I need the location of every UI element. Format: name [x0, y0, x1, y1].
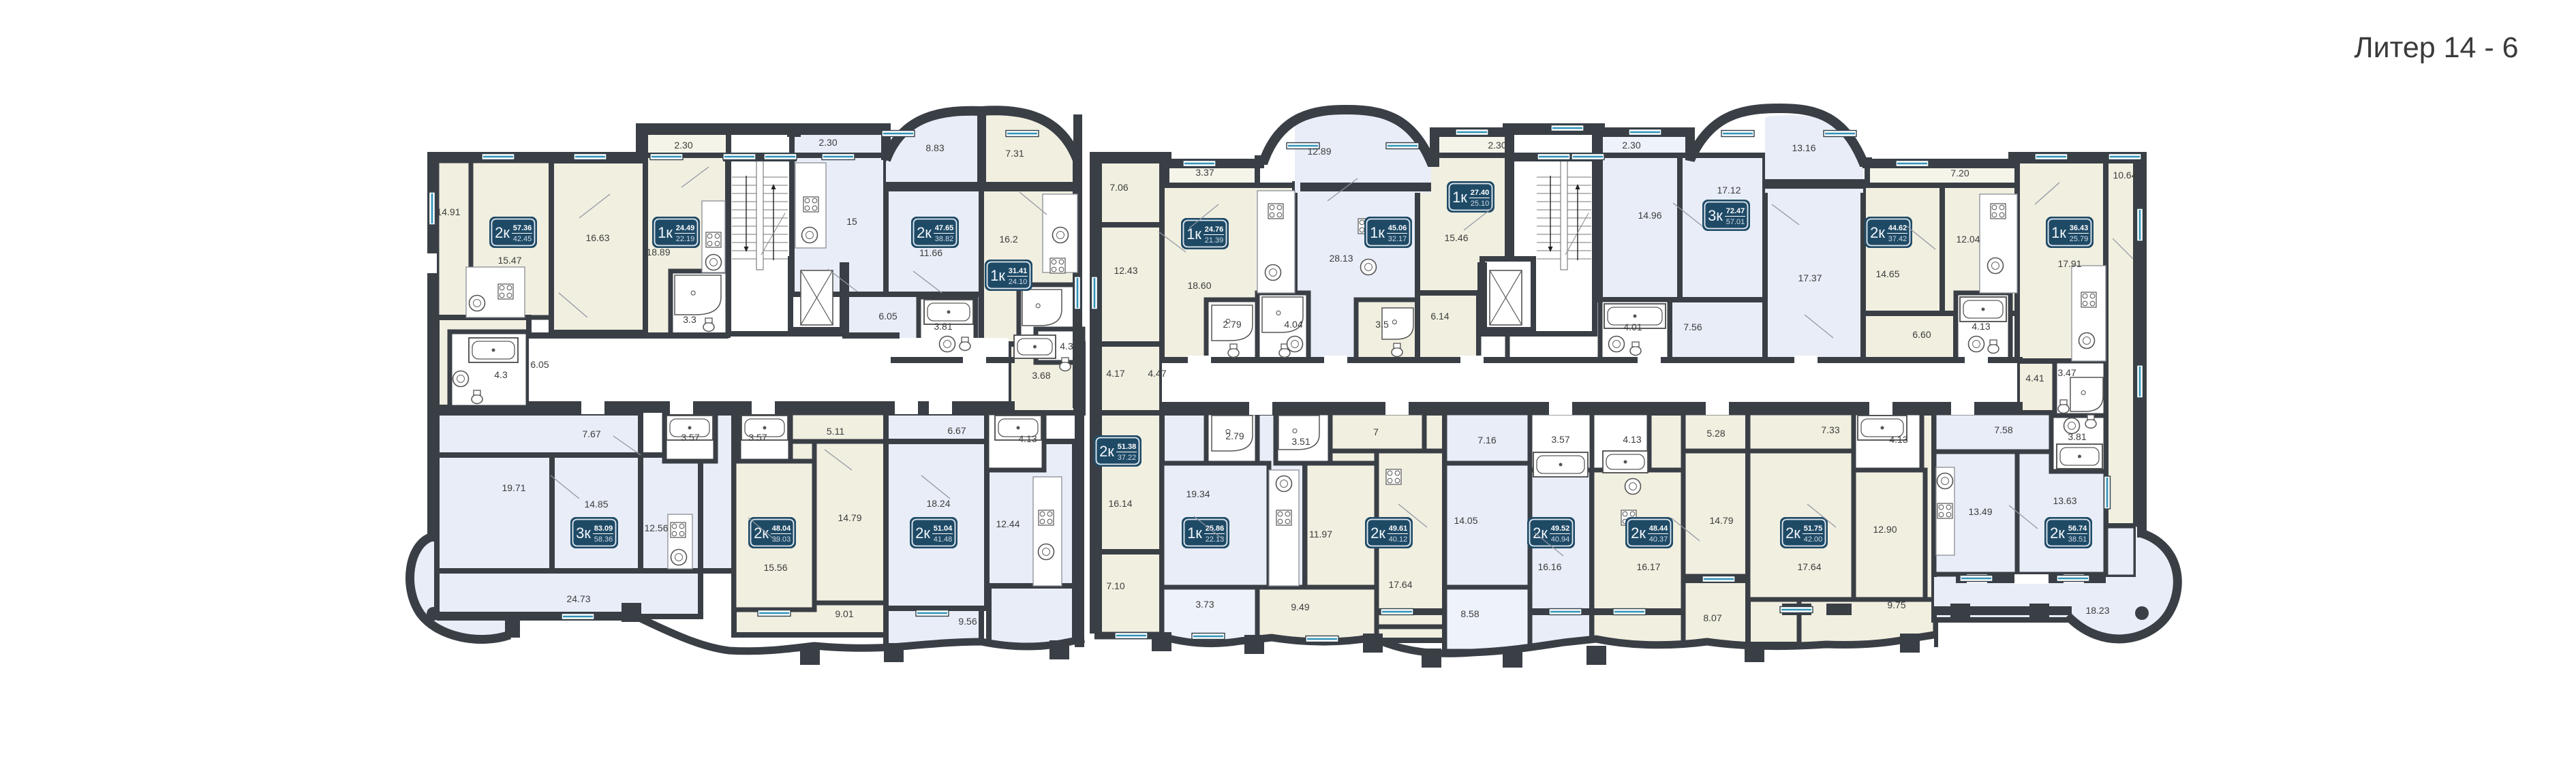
svg-text:24.49: 24.49 — [676, 224, 695, 232]
svg-text:4.3: 4.3 — [494, 369, 508, 380]
svg-text:Литер 14 - 6: Литер 14 - 6 — [2354, 31, 2518, 64]
svg-text:2к: 2к — [1099, 443, 1114, 460]
svg-text:8.83: 8.83 — [925, 142, 944, 153]
svg-text:9.75: 9.75 — [1887, 599, 1905, 610]
svg-text:14.65: 14.65 — [1875, 268, 1899, 279]
svg-text:37.22: 37.22 — [1118, 454, 1137, 462]
svg-text:51.04: 51.04 — [934, 525, 953, 533]
svg-text:1к: 1к — [990, 267, 1005, 284]
svg-text:40.12: 40.12 — [1389, 535, 1408, 544]
svg-text:12.43: 12.43 — [1114, 265, 1137, 276]
svg-text:36.43: 36.43 — [2070, 224, 2089, 232]
svg-text:14.85: 14.85 — [584, 499, 608, 510]
svg-text:14.96: 14.96 — [1638, 210, 1661, 221]
svg-text:22.19: 22.19 — [676, 235, 695, 243]
svg-text:9.56: 9.56 — [958, 616, 977, 627]
svg-text:16.17: 16.17 — [1636, 561, 1660, 572]
svg-text:12.89: 12.89 — [1307, 146, 1331, 157]
svg-text:72.47: 72.47 — [1726, 207, 1745, 215]
svg-text:4.13: 4.13 — [1018, 433, 1037, 444]
svg-text:14.91: 14.91 — [436, 206, 460, 217]
svg-text:2.30: 2.30 — [818, 137, 837, 148]
svg-text:16.16: 16.16 — [1537, 561, 1561, 572]
svg-text:12.56: 12.56 — [644, 522, 668, 533]
svg-text:28.13: 28.13 — [1329, 253, 1353, 264]
svg-text:17.91: 17.91 — [2057, 258, 2081, 269]
svg-text:6.14: 6.14 — [1430, 311, 1449, 322]
svg-text:40.37: 40.37 — [1649, 535, 1668, 544]
svg-text:4.47: 4.47 — [1148, 368, 1166, 379]
svg-text:17.37: 17.37 — [1798, 272, 1822, 283]
svg-text:24.10: 24.10 — [1009, 278, 1028, 286]
svg-text:2к: 2к — [1785, 525, 1800, 542]
svg-text:7.67: 7.67 — [582, 428, 600, 439]
svg-text:3.3: 3.3 — [683, 314, 696, 325]
svg-text:16.14: 16.14 — [1108, 498, 1132, 509]
svg-text:25.10: 25.10 — [1471, 200, 1490, 208]
svg-text:13.49: 13.49 — [1968, 506, 1992, 517]
svg-text:38.82: 38.82 — [935, 235, 954, 243]
svg-text:7.33: 7.33 — [1821, 424, 1839, 435]
svg-text:2.79: 2.79 — [1223, 319, 1241, 330]
svg-text:16.63: 16.63 — [585, 232, 609, 243]
svg-text:1к: 1к — [1186, 225, 1201, 243]
svg-text:31.41: 31.41 — [1009, 267, 1028, 275]
svg-text:7.31: 7.31 — [1005, 148, 1024, 159]
svg-text:9.49: 9.49 — [1291, 602, 1309, 612]
svg-text:18.23: 18.23 — [2085, 605, 2109, 616]
svg-text:3.73: 3.73 — [1195, 599, 1214, 610]
svg-text:15: 15 — [846, 216, 857, 227]
svg-text:2к: 2к — [915, 525, 930, 542]
svg-text:15.46: 15.46 — [1444, 232, 1468, 243]
svg-text:42.45: 42.45 — [513, 235, 532, 243]
svg-text:11.66: 11.66 — [919, 247, 942, 258]
svg-text:83.09: 83.09 — [594, 525, 613, 533]
svg-text:2к: 2к — [1370, 525, 1385, 542]
svg-text:1к: 1к — [2051, 224, 2066, 241]
svg-text:4.01: 4.01 — [1623, 322, 1642, 332]
svg-text:24.76: 24.76 — [1205, 225, 1224, 234]
svg-text:16.2: 16.2 — [999, 234, 1017, 245]
svg-text:19.71: 19.71 — [502, 482, 525, 493]
svg-text:4.17: 4.17 — [1106, 368, 1124, 379]
svg-text:4.13: 4.13 — [1623, 434, 1641, 445]
svg-text:8.58: 8.58 — [1460, 608, 1479, 619]
svg-text:5.28: 5.28 — [1706, 428, 1725, 439]
svg-text:3.57: 3.57 — [748, 432, 767, 443]
svg-text:6.05: 6.05 — [878, 311, 897, 322]
svg-text:2.79: 2.79 — [1225, 431, 1244, 441]
svg-text:2к: 2к — [495, 224, 510, 241]
svg-text:3.51: 3.51 — [1291, 436, 1310, 447]
svg-text:51.38: 51.38 — [1118, 443, 1137, 451]
svg-text:25.79: 25.79 — [2070, 235, 2089, 243]
svg-text:57.36: 57.36 — [513, 224, 532, 232]
svg-text:6.60: 6.60 — [1912, 329, 1931, 340]
svg-text:58.36: 58.36 — [594, 535, 613, 544]
svg-text:2.30: 2.30 — [674, 140, 692, 151]
svg-text:45.06: 45.06 — [1388, 224, 1407, 232]
svg-text:3.47: 3.47 — [2057, 367, 2076, 378]
svg-text:13.63: 13.63 — [2053, 495, 2076, 506]
svg-text:40.94: 40.94 — [1551, 535, 1570, 544]
svg-text:7.06: 7.06 — [1109, 182, 1128, 193]
svg-text:18.60: 18.60 — [1187, 280, 1211, 291]
svg-text:14.79: 14.79 — [838, 512, 861, 523]
svg-text:7.20: 7.20 — [1950, 168, 1969, 178]
svg-text:11.97: 11.97 — [1309, 529, 1332, 540]
svg-text:48.04: 48.04 — [772, 525, 791, 533]
svg-text:47.65: 47.65 — [935, 224, 954, 232]
svg-text:19.34: 19.34 — [1186, 488, 1210, 499]
svg-text:14.79: 14.79 — [1709, 515, 1733, 526]
svg-text:7.58: 7.58 — [1994, 424, 2012, 435]
svg-text:2.30: 2.30 — [1622, 140, 1640, 151]
svg-text:3.68: 3.68 — [1032, 370, 1050, 381]
svg-text:3.81: 3.81 — [934, 321, 952, 332]
svg-text:25.86: 25.86 — [1206, 525, 1225, 533]
svg-text:3.57: 3.57 — [1551, 434, 1569, 445]
svg-text:17.64: 17.64 — [1388, 579, 1412, 590]
svg-text:2к: 2к — [2050, 525, 2065, 542]
svg-text:32.17: 32.17 — [1388, 235, 1407, 243]
svg-text:2к: 2к — [917, 224, 932, 241]
svg-text:12.04: 12.04 — [1956, 234, 1980, 245]
svg-text:3.5: 3.5 — [1375, 319, 1389, 330]
svg-text:17.64: 17.64 — [1797, 561, 1821, 572]
svg-text:12.44: 12.44 — [996, 518, 1019, 529]
svg-text:2к: 2к — [1870, 224, 1885, 241]
svg-text:4.41: 4.41 — [2025, 373, 2044, 384]
svg-text:48.44: 48.44 — [1649, 525, 1668, 533]
svg-text:1к: 1к — [1370, 224, 1385, 241]
svg-text:7.56: 7.56 — [1683, 322, 1702, 332]
svg-text:22.13: 22.13 — [1206, 535, 1225, 544]
svg-text:1к: 1к — [658, 224, 673, 241]
svg-text:1к: 1к — [1187, 525, 1202, 542]
svg-text:15.47: 15.47 — [497, 255, 521, 266]
svg-text:51.75: 51.75 — [1804, 525, 1823, 533]
svg-text:3к: 3к — [576, 525, 591, 542]
svg-text:57.01: 57.01 — [1726, 218, 1745, 226]
svg-text:2к: 2к — [1631, 525, 1646, 542]
svg-text:21.39: 21.39 — [1205, 236, 1224, 245]
svg-text:49.52: 49.52 — [1551, 525, 1570, 533]
svg-text:4.13: 4.13 — [1972, 321, 1990, 332]
svg-text:9.01: 9.01 — [835, 608, 853, 619]
svg-text:4.04: 4.04 — [1284, 319, 1302, 330]
svg-text:18.89: 18.89 — [646, 247, 670, 257]
svg-text:14.05: 14.05 — [1454, 515, 1477, 526]
svg-text:3к: 3к — [1708, 207, 1723, 224]
svg-text:27.40: 27.40 — [1471, 189, 1490, 197]
svg-text:6.67: 6.67 — [947, 425, 966, 436]
svg-text:37.42: 37.42 — [1888, 235, 1907, 243]
svg-text:4.13: 4.13 — [1889, 434, 1907, 445]
svg-text:18.24: 18.24 — [926, 498, 950, 509]
svg-text:5.11: 5.11 — [827, 426, 844, 437]
svg-text:7: 7 — [1373, 426, 1379, 437]
svg-text:41.48: 41.48 — [934, 535, 953, 544]
svg-text:3.81: 3.81 — [2068, 431, 2086, 442]
svg-text:3.57: 3.57 — [681, 432, 699, 443]
svg-text:17.12: 17.12 — [1717, 185, 1741, 196]
svg-text:15.56: 15.56 — [763, 562, 787, 573]
svg-text:13.16: 13.16 — [1792, 142, 1815, 153]
svg-text:6.05: 6.05 — [530, 359, 549, 370]
svg-text:49.61: 49.61 — [1389, 525, 1408, 533]
svg-text:4.3: 4.3 — [1060, 341, 1073, 352]
svg-text:1к: 1к — [1452, 189, 1467, 206]
svg-text:7.10: 7.10 — [1106, 580, 1124, 591]
svg-text:3.37: 3.37 — [1195, 167, 1214, 178]
svg-text:7.16: 7.16 — [1477, 435, 1496, 446]
svg-text:10.64: 10.64 — [2113, 170, 2136, 181]
svg-text:42.00: 42.00 — [1804, 535, 1823, 544]
svg-text:2.30: 2.30 — [1488, 140, 1506, 151]
svg-text:8.07: 8.07 — [1703, 612, 1721, 623]
svg-text:56.74: 56.74 — [2068, 525, 2087, 533]
svg-text:38.51: 38.51 — [2068, 535, 2087, 544]
svg-text:12.90: 12.90 — [1873, 524, 1897, 535]
svg-text:24.73: 24.73 — [566, 593, 590, 604]
svg-text:44.62: 44.62 — [1888, 224, 1907, 232]
